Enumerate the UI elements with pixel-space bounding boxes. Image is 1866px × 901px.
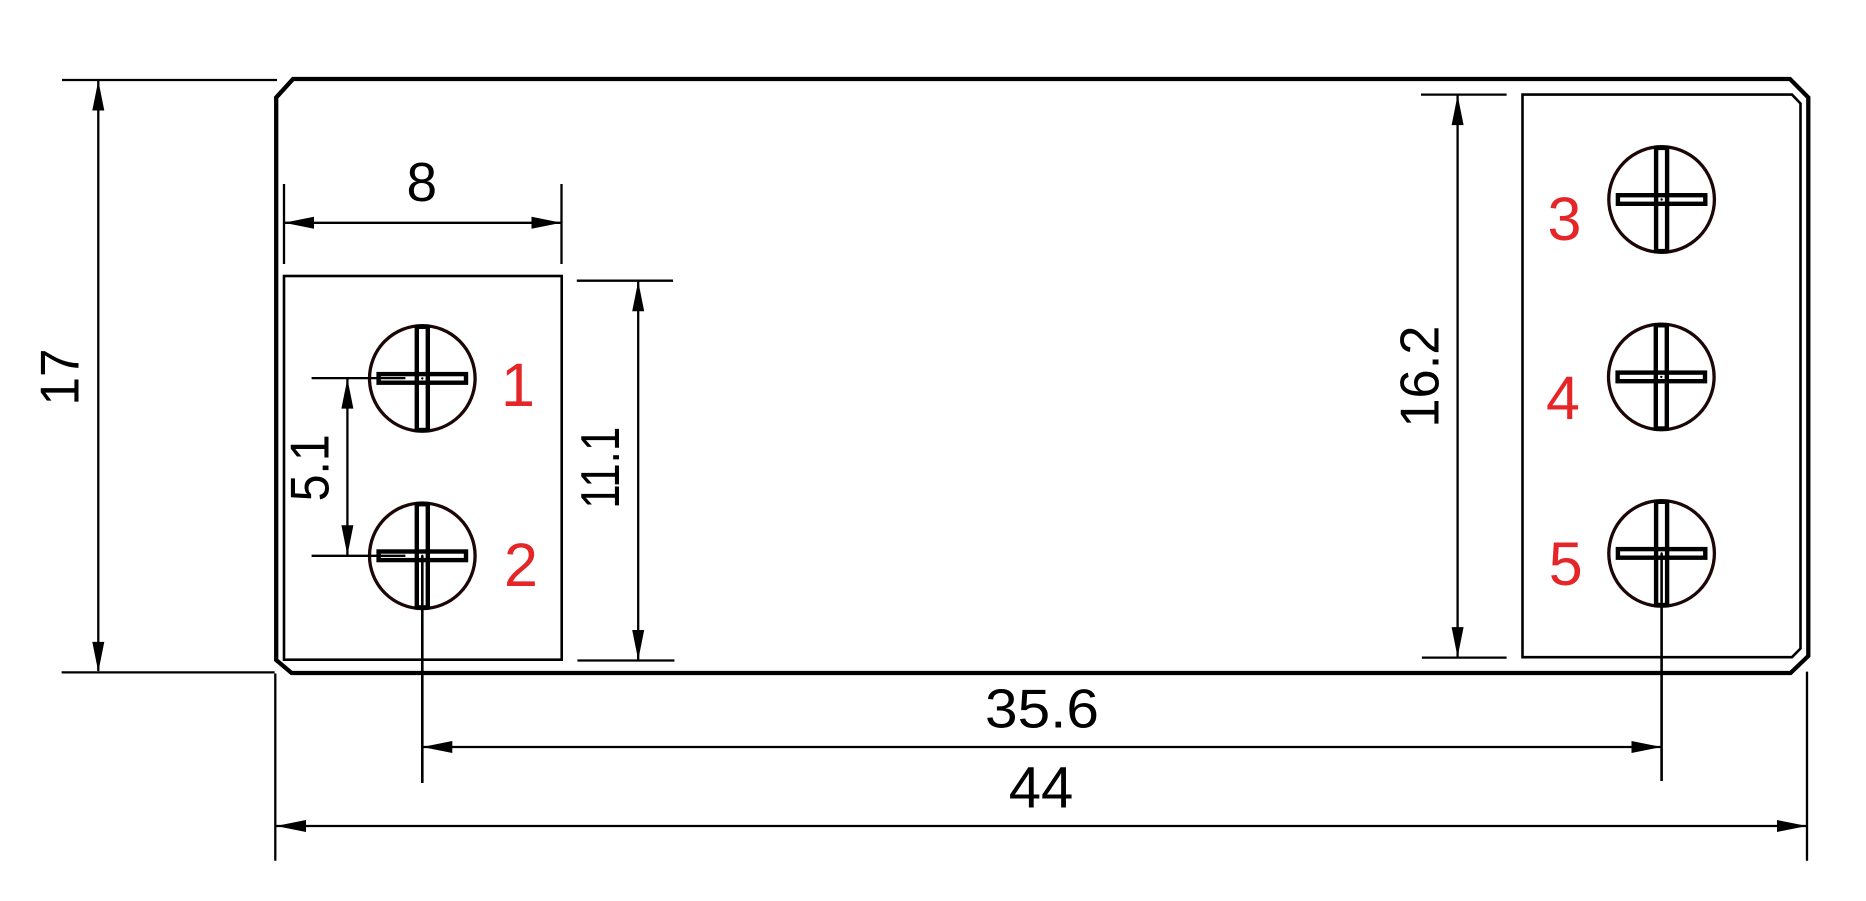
svg-text:2: 2 <box>504 531 538 599</box>
svg-text:5.1: 5.1 <box>279 434 341 501</box>
svg-text:3: 3 <box>1548 185 1582 253</box>
svg-text:11.1: 11.1 <box>569 427 631 509</box>
svg-text:35.6: 35.6 <box>985 678 1099 740</box>
svg-text:1: 1 <box>501 351 535 419</box>
svg-text:8: 8 <box>407 151 438 213</box>
svg-text:44: 44 <box>1009 756 1074 821</box>
svg-text:5: 5 <box>1549 530 1583 598</box>
svg-text:4: 4 <box>1546 364 1580 432</box>
svg-text:17: 17 <box>29 349 91 406</box>
svg-text:16.2: 16.2 <box>1389 326 1451 428</box>
